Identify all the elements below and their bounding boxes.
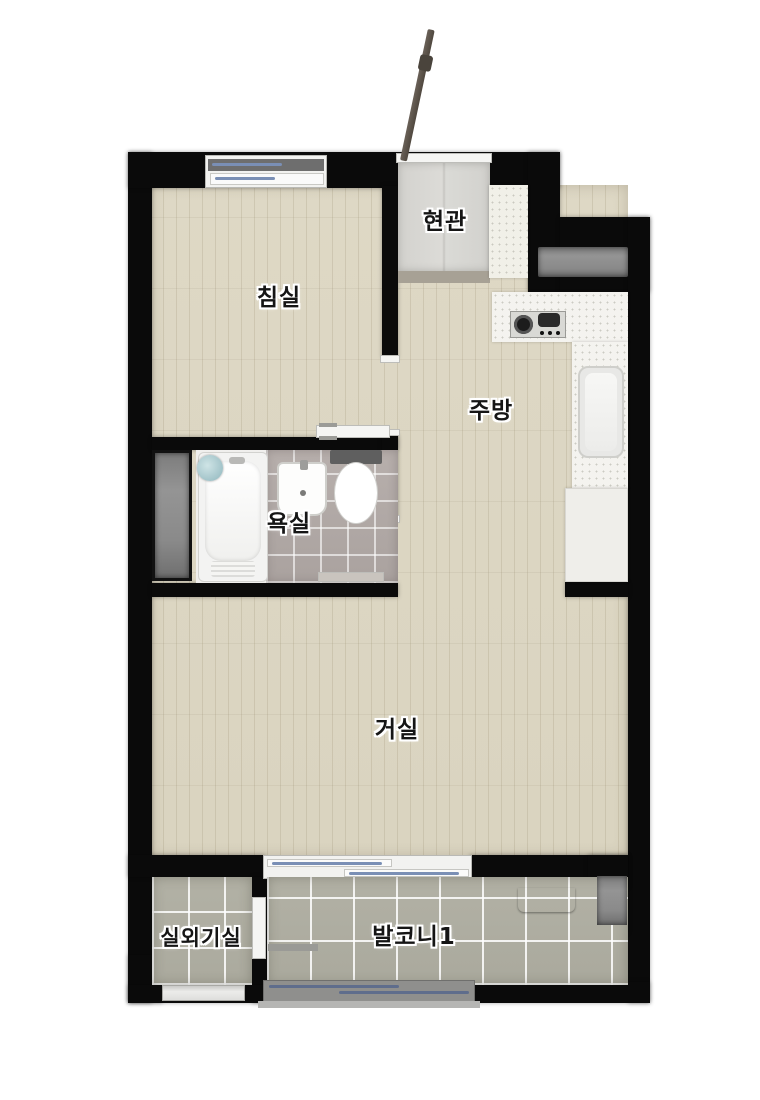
wall-top [128, 152, 560, 188]
stove-knob-icon [540, 331, 544, 335]
entrance-threshold [398, 271, 490, 283]
room-label-kitchen: 주방 [469, 391, 513, 425]
balcony-side-bar [268, 944, 318, 951]
entrance-door-threshold [396, 153, 492, 163]
window-pane [210, 173, 324, 185]
door-handle-icon [319, 423, 337, 427]
duct-top-right [538, 247, 628, 277]
room-label-bathroom: 욕실 [267, 504, 311, 538]
bathroom-mat [318, 572, 384, 582]
wall-bathroom-bottom [152, 583, 398, 597]
outdoor-balcony-door [252, 897, 266, 959]
stove-burner-icon [538, 313, 560, 327]
balcony-shelf [518, 888, 575, 912]
bedroom-window [205, 155, 327, 188]
living-balcony-window [263, 855, 472, 879]
kitchen-sink-basin [585, 373, 617, 451]
toilet-bowl [334, 462, 378, 524]
door-handle-icon [319, 436, 337, 440]
room-label-entrance: 현관 [423, 202, 467, 236]
bedroom-sliding-door [316, 425, 390, 438]
wall-bedroom-bottom [152, 437, 398, 450]
room-label-outdoor-unit-room: 실외기실 [160, 922, 241, 952]
kitchen-cabinet [565, 488, 628, 582]
wall-kitchen-bottom [565, 582, 628, 597]
window-pane [208, 159, 324, 171]
stove-burner-icon [514, 315, 533, 334]
stove-knob-icon [548, 331, 552, 335]
bathtub-faucet-icon [229, 457, 245, 464]
balcony-window-sill [258, 1001, 480, 1008]
shower-head-icon [197, 455, 223, 481]
bathtub [198, 452, 268, 582]
room-label-balcony: 발코니1 [372, 917, 455, 951]
outdoor-room-window [162, 985, 245, 1001]
wall-balcony-bottom [470, 982, 650, 1003]
balcony-bottom-window [263, 980, 475, 1003]
wall-living-bottom-left [128, 855, 265, 877]
room-label-bedroom: 침실 [257, 278, 301, 312]
shoe-cabinet [489, 185, 528, 278]
wall-bedroom-entrance [382, 186, 398, 358]
entrance-door [400, 29, 435, 162]
kitchen-sink [578, 366, 624, 458]
wall-right [628, 217, 650, 1003]
duct-balcony [597, 876, 627, 925]
wall-end-cap [380, 355, 400, 363]
door-knob-icon [417, 54, 433, 72]
stove-knob-icon [556, 331, 560, 335]
gas-stove [510, 311, 566, 338]
sink-drain-icon [300, 490, 306, 496]
sink-faucet-icon [300, 460, 308, 470]
duct-bathroom-left [152, 450, 192, 581]
floorplan-canvas: 침실 현관 주방 욕실 거실 실외기실 발코니1 [0, 0, 760, 1100]
window-pane [344, 869, 469, 877]
window-pane [267, 859, 392, 867]
room-label-living-room: 거실 [375, 710, 419, 744]
bathtub-ridge [211, 561, 255, 577]
